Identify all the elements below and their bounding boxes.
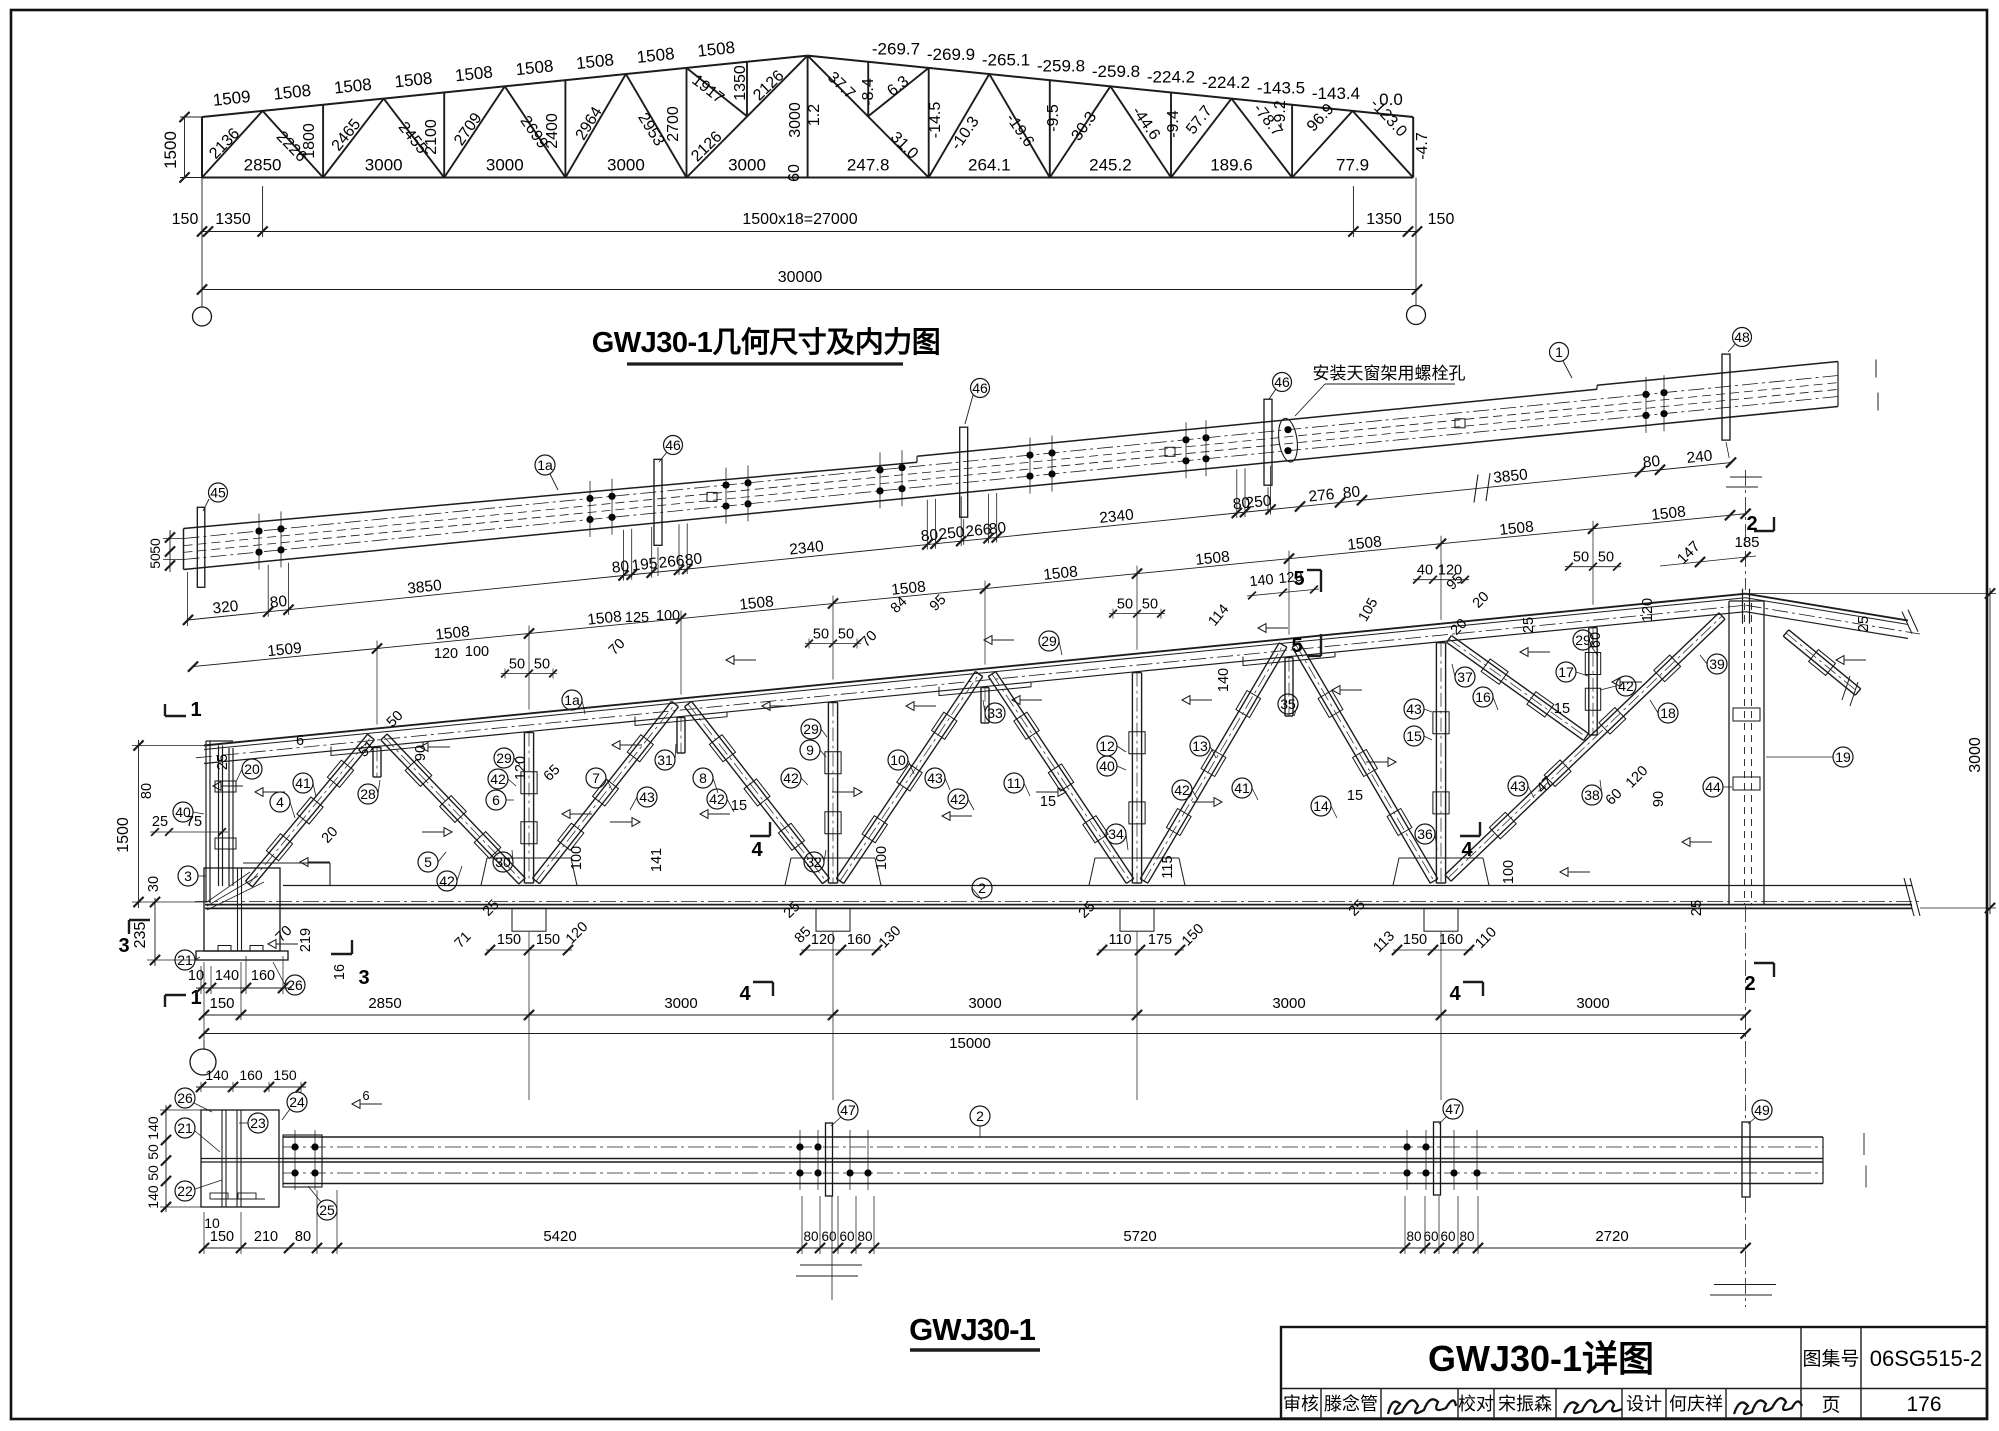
svg-text:3000: 3000 <box>607 156 645 175</box>
svg-text:120: 120 <box>434 646 458 662</box>
svg-text:42: 42 <box>1618 678 1634 694</box>
svg-text:100: 100 <box>569 846 585 870</box>
svg-text:-143.4: -143.4 <box>1312 84 1360 103</box>
svg-text:10: 10 <box>188 968 204 984</box>
svg-text:24: 24 <box>289 1094 305 1110</box>
svg-text:-4.7: -4.7 <box>1414 132 1431 160</box>
svg-text:150: 150 <box>209 995 234 1012</box>
svg-text:80: 80 <box>295 1229 311 1245</box>
svg-text:50: 50 <box>813 627 829 643</box>
svg-text:安装天窗架用螺栓孔: 安装天窗架用螺栓孔 <box>1313 364 1466 383</box>
svg-text:320: 320 <box>212 598 240 618</box>
svg-text:2850: 2850 <box>244 156 282 175</box>
svg-text:43: 43 <box>639 789 655 805</box>
svg-text:3000: 3000 <box>365 156 403 175</box>
svg-text:50: 50 <box>509 657 525 673</box>
svg-text:3000: 3000 <box>664 995 697 1012</box>
svg-text:4: 4 <box>1461 839 1473 861</box>
svg-text:140: 140 <box>145 1116 161 1140</box>
svg-text:210: 210 <box>254 1229 278 1245</box>
svg-text:2100: 2100 <box>423 119 440 155</box>
svg-text:50: 50 <box>145 1165 161 1181</box>
svg-text:150: 150 <box>536 932 560 948</box>
svg-text:175: 175 <box>1148 932 1172 948</box>
svg-text:49: 49 <box>1754 1102 1770 1118</box>
svg-text:47: 47 <box>1445 1101 1461 1117</box>
svg-text:40: 40 <box>1099 758 1115 774</box>
svg-text:115: 115 <box>1160 855 1176 878</box>
svg-text:6: 6 <box>492 792 500 808</box>
svg-text:45: 45 <box>210 484 226 500</box>
svg-text:30: 30 <box>495 854 511 870</box>
svg-text:48: 48 <box>1734 329 1750 345</box>
svg-text:1: 1 <box>1555 344 1563 360</box>
svg-text:5: 5 <box>1291 635 1302 657</box>
svg-text:110: 110 <box>1108 932 1131 948</box>
svg-text:11: 11 <box>1007 775 1022 791</box>
svg-text:60: 60 <box>821 1229 836 1244</box>
svg-text:页: 页 <box>1821 1395 1840 1416</box>
svg-text:3000: 3000 <box>1576 995 1609 1012</box>
svg-text:80: 80 <box>1406 1229 1421 1244</box>
svg-text:-265.1: -265.1 <box>982 51 1030 70</box>
svg-text:1508: 1508 <box>575 50 615 73</box>
svg-text:160: 160 <box>239 1067 263 1083</box>
svg-text:-9.5: -9.5 <box>1045 104 1062 132</box>
svg-text:2340: 2340 <box>788 538 824 559</box>
svg-text:80: 80 <box>139 783 155 799</box>
svg-text:35: 35 <box>1280 696 1296 712</box>
svg-text:23: 23 <box>250 1115 266 1131</box>
svg-text:2: 2 <box>978 880 986 896</box>
svg-text:1508: 1508 <box>696 38 736 61</box>
svg-text:9: 9 <box>806 742 814 758</box>
svg-text:1508: 1508 <box>434 623 470 644</box>
svg-text:25: 25 <box>215 754 231 770</box>
svg-text:150: 150 <box>172 211 199 228</box>
svg-text:235: 235 <box>132 922 149 949</box>
svg-text:-259.8: -259.8 <box>1092 62 1140 81</box>
svg-text:140: 140 <box>1249 572 1275 590</box>
svg-text:160: 160 <box>1439 932 1463 948</box>
svg-text:50: 50 <box>147 553 163 569</box>
svg-text:1500: 1500 <box>161 131 180 169</box>
svg-text:42: 42 <box>1174 782 1190 798</box>
svg-text:6: 6 <box>362 1088 369 1103</box>
svg-text:图集号: 图集号 <box>1802 1348 1859 1370</box>
svg-text:40: 40 <box>1417 563 1433 579</box>
svg-text:10: 10 <box>890 752 906 768</box>
svg-text:5720: 5720 <box>1123 1228 1156 1245</box>
svg-text:4: 4 <box>1449 983 1461 1005</box>
svg-text:150: 150 <box>273 1067 297 1083</box>
svg-text:14: 14 <box>1313 798 1329 814</box>
svg-text:25: 25 <box>1856 616 1872 632</box>
svg-text:15: 15 <box>1406 728 1422 744</box>
svg-text:1508: 1508 <box>636 44 676 67</box>
svg-text:50: 50 <box>1117 597 1133 613</box>
svg-text:15: 15 <box>1554 701 1570 717</box>
svg-text:31: 31 <box>657 752 673 768</box>
svg-text:43: 43 <box>1406 701 1422 717</box>
svg-text:1508: 1508 <box>515 56 555 79</box>
svg-text:140: 140 <box>205 1067 229 1083</box>
svg-text:5: 5 <box>1293 568 1304 590</box>
svg-text:17: 17 <box>1558 664 1574 680</box>
svg-text:25: 25 <box>152 814 168 830</box>
svg-text:15: 15 <box>731 798 747 814</box>
svg-text:-224.2: -224.2 <box>1202 73 1250 92</box>
svg-text:29: 29 <box>496 750 512 766</box>
svg-text:-14.5: -14.5 <box>927 102 944 139</box>
svg-text:60: 60 <box>786 164 803 182</box>
svg-text:46: 46 <box>1274 374 1290 390</box>
svg-text:2: 2 <box>1744 973 1755 995</box>
svg-text:3000: 3000 <box>1272 995 1305 1012</box>
svg-text:125: 125 <box>625 610 649 626</box>
svg-text:30: 30 <box>146 876 162 892</box>
svg-text:44: 44 <box>1705 779 1721 795</box>
svg-text:141: 141 <box>649 848 665 872</box>
svg-text:2720: 2720 <box>1595 1228 1628 1245</box>
svg-text:160: 160 <box>251 968 275 984</box>
svg-text:12: 12 <box>1099 738 1115 754</box>
svg-text:-269.7: -269.7 <box>872 40 920 59</box>
svg-text:80: 80 <box>1342 483 1361 502</box>
svg-text:50: 50 <box>1573 550 1589 566</box>
svg-text:25: 25 <box>1521 617 1537 633</box>
svg-text:21: 21 <box>177 1120 193 1136</box>
svg-text:245.2: 245.2 <box>1089 156 1132 175</box>
svg-text:15000: 15000 <box>949 1035 991 1052</box>
svg-text:1500: 1500 <box>115 817 132 853</box>
svg-text:何庆祥: 何庆祥 <box>1669 1394 1723 1414</box>
svg-text:80: 80 <box>920 526 939 545</box>
svg-text:140: 140 <box>145 1185 161 1209</box>
svg-text:28: 28 <box>360 786 376 802</box>
svg-text:250: 250 <box>1245 492 1273 512</box>
svg-text:90: 90 <box>413 745 429 761</box>
svg-text:6: 6 <box>296 733 304 749</box>
svg-text:42: 42 <box>783 770 799 786</box>
svg-text:3: 3 <box>358 967 369 989</box>
svg-text:2: 2 <box>976 1108 984 1124</box>
svg-text:1508: 1508 <box>272 81 312 104</box>
svg-text:60: 60 <box>1423 1229 1438 1244</box>
svg-text:GWJ30-1: GWJ30-1 <box>909 1312 1035 1347</box>
svg-text:60: 60 <box>1588 632 1604 648</box>
svg-text:-9.2: -9.2 <box>1272 100 1289 128</box>
svg-text:43: 43 <box>927 770 943 786</box>
svg-text:-224.2: -224.2 <box>1147 68 1195 87</box>
svg-text:1350: 1350 <box>215 211 251 228</box>
svg-text:25: 25 <box>319 1202 335 1218</box>
svg-text:13: 13 <box>1192 738 1208 754</box>
svg-text:3000: 3000 <box>1967 737 1984 773</box>
svg-text:42: 42 <box>709 791 725 807</box>
svg-text:80: 80 <box>611 558 630 577</box>
svg-text:29: 29 <box>803 721 819 737</box>
svg-text:50: 50 <box>145 1144 161 1160</box>
svg-text:47: 47 <box>840 1102 856 1118</box>
svg-text:22: 22 <box>177 1183 193 1199</box>
svg-text:26: 26 <box>177 1090 193 1106</box>
svg-text:1508: 1508 <box>454 63 494 86</box>
svg-text:276: 276 <box>1308 486 1336 506</box>
svg-text:50: 50 <box>147 538 163 554</box>
svg-text:34: 34 <box>1108 826 1124 842</box>
svg-text:GWJ30-1几何尺寸及内力图: GWJ30-1几何尺寸及内力图 <box>592 326 941 359</box>
svg-text:41: 41 <box>295 775 311 791</box>
svg-text:3000: 3000 <box>728 156 766 175</box>
svg-text:1509: 1509 <box>266 640 302 661</box>
svg-text:33: 33 <box>987 705 1003 721</box>
svg-text:80: 80 <box>269 593 288 612</box>
svg-text:8: 8 <box>699 770 707 786</box>
svg-text:16: 16 <box>1475 689 1491 705</box>
svg-text:240: 240 <box>1686 447 1714 467</box>
svg-text:120: 120 <box>1438 563 1462 579</box>
svg-text:16: 16 <box>332 964 348 980</box>
svg-text:189.6: 189.6 <box>1210 156 1253 175</box>
svg-text:2400: 2400 <box>544 113 561 149</box>
svg-text:140: 140 <box>215 968 239 984</box>
svg-text:120: 120 <box>1640 598 1656 622</box>
svg-text:3: 3 <box>184 868 192 884</box>
svg-text:266: 266 <box>658 552 686 572</box>
svg-text:GWJ30-1详图: GWJ30-1详图 <box>1428 1338 1654 1379</box>
svg-text:75: 75 <box>186 814 202 830</box>
svg-text:18: 18 <box>1660 705 1676 721</box>
svg-text:5: 5 <box>424 854 432 870</box>
svg-text:1509: 1509 <box>212 87 252 110</box>
svg-text:32: 32 <box>806 854 822 870</box>
svg-text:46: 46 <box>665 437 681 453</box>
svg-text:46: 46 <box>972 380 988 396</box>
svg-text:-269.9: -269.9 <box>927 45 975 64</box>
svg-text:219: 219 <box>298 928 314 952</box>
svg-text:1508: 1508 <box>738 593 774 614</box>
svg-text:36: 36 <box>1417 826 1433 842</box>
svg-text:264.1: 264.1 <box>968 156 1011 175</box>
svg-text:1.2: 1.2 <box>806 104 823 126</box>
svg-text:25: 25 <box>1689 900 1705 916</box>
svg-text:1508: 1508 <box>1498 518 1534 539</box>
svg-text:41: 41 <box>1234 780 1250 796</box>
svg-text:2700: 2700 <box>665 106 682 142</box>
svg-text:120: 120 <box>513 756 529 780</box>
svg-text:1508: 1508 <box>1194 548 1230 569</box>
svg-text:3: 3 <box>118 935 129 957</box>
svg-text:1500x18=27000: 1500x18=27000 <box>742 211 857 228</box>
svg-text:100: 100 <box>656 608 680 624</box>
svg-text:140: 140 <box>1216 668 1232 692</box>
svg-text:195: 195 <box>631 555 659 575</box>
svg-text:19: 19 <box>1835 749 1851 765</box>
svg-text:39: 39 <box>1709 656 1725 672</box>
svg-text:80: 80 <box>1642 453 1661 472</box>
svg-text:2340: 2340 <box>1098 506 1134 527</box>
svg-text:100: 100 <box>465 644 489 660</box>
svg-text:设计: 设计 <box>1626 1394 1662 1414</box>
svg-text:1a: 1a <box>537 457 553 473</box>
svg-text:77.9: 77.9 <box>1336 156 1369 175</box>
svg-text:-259.8: -259.8 <box>1037 56 1085 75</box>
svg-text:15: 15 <box>1040 794 1056 810</box>
svg-text:42: 42 <box>950 791 966 807</box>
svg-text:4: 4 <box>739 983 751 1005</box>
svg-text:80: 80 <box>988 519 1007 538</box>
svg-text:80: 80 <box>1459 1229 1474 1244</box>
svg-text:37: 37 <box>1457 669 1473 685</box>
svg-text:-9.4: -9.4 <box>1165 110 1182 138</box>
svg-text:1800: 1800 <box>301 123 318 159</box>
svg-text:1508: 1508 <box>1346 533 1382 554</box>
svg-text:60: 60 <box>839 1229 854 1244</box>
svg-text:60: 60 <box>1440 1229 1455 1244</box>
svg-text:审核: 审核 <box>1283 1394 1319 1414</box>
svg-text:1350: 1350 <box>732 65 749 101</box>
svg-text:150: 150 <box>1403 932 1427 948</box>
svg-text:5420: 5420 <box>543 1228 576 1245</box>
svg-text:1508: 1508 <box>1042 563 1078 584</box>
svg-text:1350: 1350 <box>1366 211 1402 228</box>
svg-text:29: 29 <box>1041 633 1057 649</box>
svg-text:3850: 3850 <box>406 577 442 598</box>
svg-text:150: 150 <box>497 932 521 948</box>
svg-text:50: 50 <box>838 627 854 643</box>
svg-text:1508: 1508 <box>586 608 622 629</box>
svg-text:1a: 1a <box>564 692 580 708</box>
svg-text:38: 38 <box>1584 787 1600 803</box>
svg-text:160: 160 <box>847 932 871 948</box>
svg-text:150: 150 <box>210 1229 234 1245</box>
svg-text:30000: 30000 <box>778 269 823 286</box>
svg-text:校对: 校对 <box>1458 1394 1494 1414</box>
svg-text:7: 7 <box>592 770 600 786</box>
svg-text:滕念管: 滕念管 <box>1324 1393 1378 1414</box>
svg-text:100: 100 <box>1501 860 1517 884</box>
svg-text:120: 120 <box>811 932 835 948</box>
svg-text:3000: 3000 <box>787 102 804 138</box>
svg-text:06SG515-2: 06SG515-2 <box>1870 1346 1983 1371</box>
svg-text:80: 80 <box>803 1229 818 1244</box>
svg-text:4: 4 <box>276 794 284 810</box>
svg-text:1: 1 <box>190 699 201 721</box>
svg-text:-8.4: -8.4 <box>860 78 877 106</box>
svg-text:4: 4 <box>751 839 763 861</box>
svg-text:-143.5: -143.5 <box>1257 79 1305 98</box>
svg-text:42: 42 <box>439 873 455 889</box>
svg-text:150: 150 <box>1428 211 1455 228</box>
svg-text:1508: 1508 <box>394 69 434 92</box>
svg-text:50: 50 <box>1142 597 1158 613</box>
svg-text:100: 100 <box>874 846 890 870</box>
svg-text:3850: 3850 <box>1492 466 1528 487</box>
svg-text:247.8: 247.8 <box>847 156 890 175</box>
svg-text:80: 80 <box>857 1229 872 1244</box>
svg-text:2850: 2850 <box>368 995 401 1012</box>
svg-text:3000: 3000 <box>486 156 524 175</box>
svg-text:2: 2 <box>1746 513 1757 535</box>
svg-text:3000: 3000 <box>968 995 1001 1012</box>
svg-text:1508: 1508 <box>1650 503 1686 524</box>
svg-text:90: 90 <box>1651 791 1667 807</box>
svg-text:176: 176 <box>1906 1393 1941 1416</box>
svg-text:42: 42 <box>490 771 506 787</box>
svg-text:15: 15 <box>1347 788 1363 804</box>
svg-text:宋振森: 宋振森 <box>1498 1394 1552 1414</box>
svg-text:185: 185 <box>1734 534 1759 551</box>
svg-text:26: 26 <box>287 977 303 993</box>
svg-text:1508: 1508 <box>333 75 373 98</box>
svg-text:43: 43 <box>1510 778 1526 794</box>
svg-text:50: 50 <box>534 657 550 673</box>
svg-text:20: 20 <box>244 761 260 777</box>
svg-text:50: 50 <box>1598 550 1614 566</box>
